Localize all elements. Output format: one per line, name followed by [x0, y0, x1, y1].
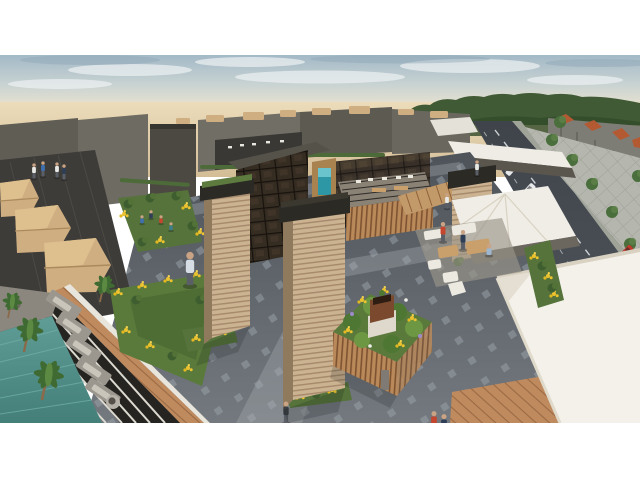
rendering-viewport: [0, 0, 640, 480]
tower-left: [200, 174, 254, 344]
teal-banner-top: [318, 168, 331, 177]
egg-chair-seat: [108, 397, 115, 404]
planter-panel: [381, 370, 389, 390]
rendering-canvas: [0, 0, 640, 480]
scene: [0, 55, 640, 440]
